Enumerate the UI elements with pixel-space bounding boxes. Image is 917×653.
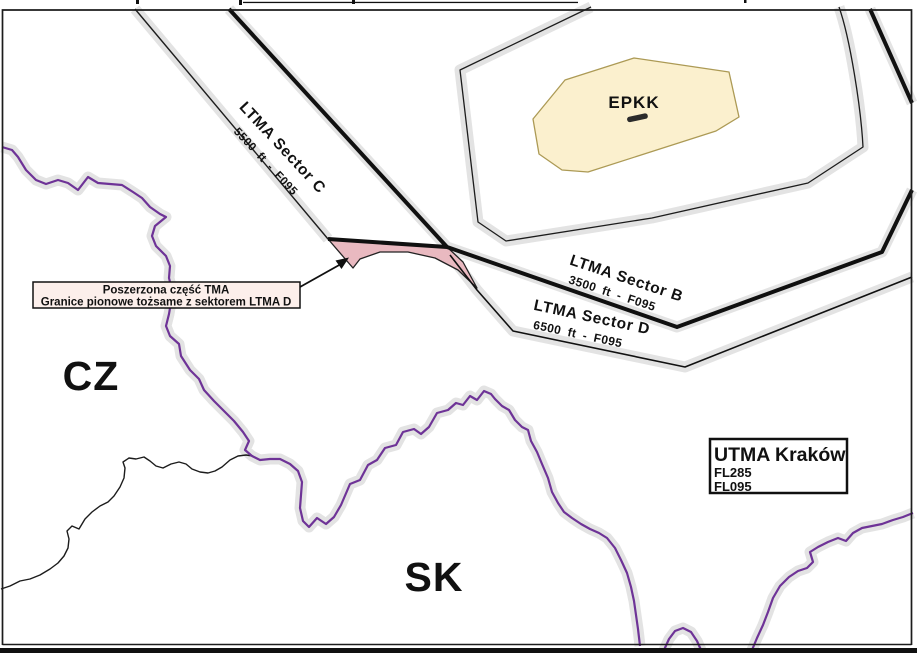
annotation-arrowhead <box>336 258 350 270</box>
annotation-line1: Poszerzona część TMA <box>103 285 230 297</box>
airport-code-label: EPKK <box>608 93 659 112</box>
map-canvas: LTMA Sector C 5500 ft - F095 LTMA Sector… <box>0 0 917 653</box>
map-frame-bottom-bar <box>0 648 917 653</box>
annotation-line2: Granice pionowe tożsame z sektorem LTMA … <box>41 297 292 309</box>
utma-info-box: UTMA Kraków FL285 FL095 <box>710 439 847 494</box>
purple-border-east <box>752 513 913 650</box>
top-crop-artifacts <box>136 0 747 5</box>
country-label-sk: SK <box>405 554 464 600</box>
annotation-callout: Poszerzona część TMA Granice pionowe toż… <box>33 258 349 309</box>
airspace-map: LTMA Sector C 5500 ft - F095 LTMA Sector… <box>0 0 917 653</box>
annotation-arrow-line <box>300 264 341 287</box>
utma-lower-limit: FL095 <box>714 479 752 494</box>
purple-border-band-east <box>752 513 913 650</box>
utma-upper-limit: FL285 <box>714 465 752 480</box>
airport-area <box>533 58 739 172</box>
utma-title: UTMA Kraków <box>714 444 846 466</box>
country-label-cz: CZ <box>63 353 120 399</box>
sector-c-west-line <box>135 9 328 239</box>
cz-sk-border-line <box>1 455 253 589</box>
